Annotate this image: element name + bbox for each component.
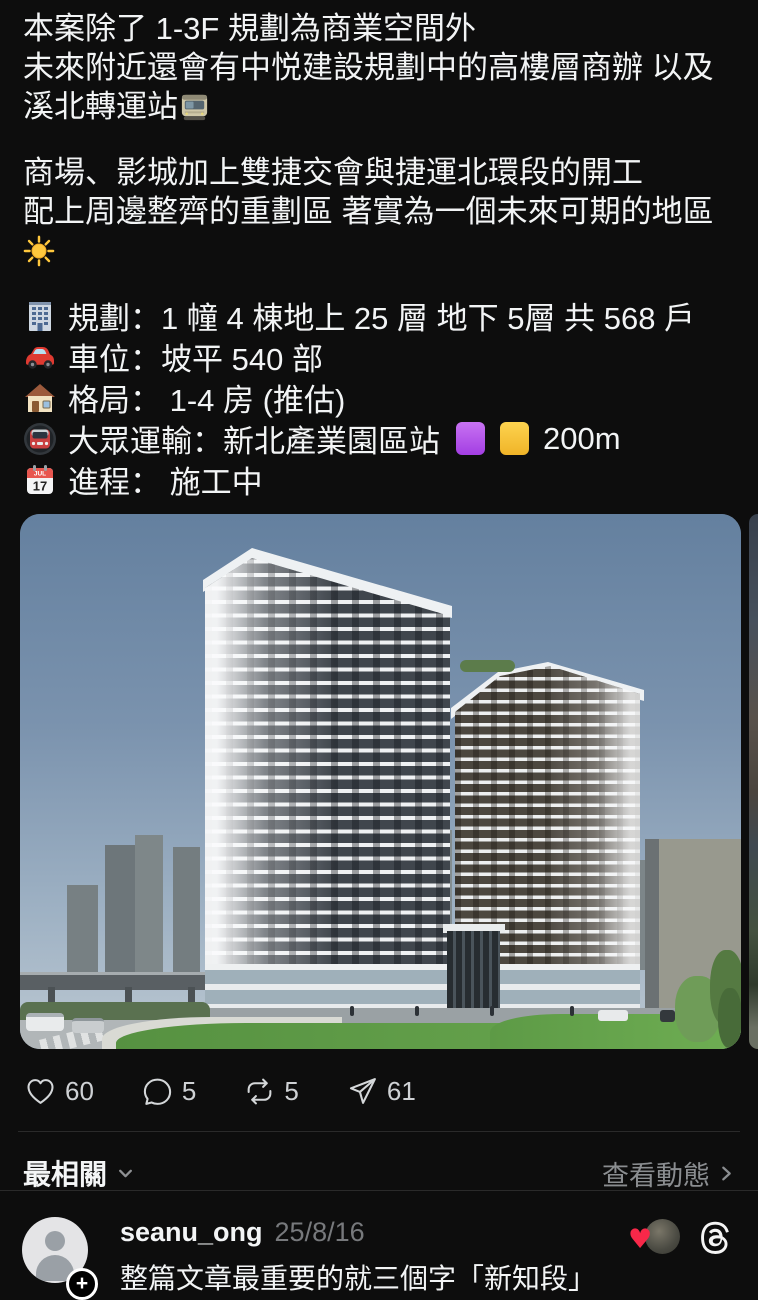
repost-count: 5 [284,1076,298,1107]
spec-list: 規劃：1 幢 4 棟地上 25 層 地下 5層 共 568 戶 車位：坡平 54… [0,276,758,500]
avatar-silhouette [45,1231,65,1251]
car [598,1010,628,1021]
share-count: 61 [387,1076,416,1107]
car [26,1013,64,1031]
office-building-emoji [23,299,57,333]
sort-dropdown[interactable]: 最相關 [23,1153,135,1193]
red-car-emoji [23,340,57,374]
post-body: 本案除了 1-3F 規劃為商業空間外 未來附近還會有中悦建設規劃中的高樓層商辦 … [0,0,758,276]
spec-text: 進程： 施工中 [68,457,263,502]
divider [18,1131,740,1132]
share-button[interactable]: 61 [347,1076,416,1107]
follow-plus-badge[interactable]: + [66,1268,98,1300]
background-building [135,835,163,984]
spec-row-transit: 大眾運輸：新北產業園區站200m [23,418,748,459]
tram-emoji [178,90,211,132]
view-activity-link[interactable]: 查看動態 [602,1154,736,1193]
spec-text: 車位：坡平 540 部 [68,334,323,379]
spec-text: 規劃：1 幢 4 棟地上 25 層 地下 5層 共 568 戶 [68,293,695,338]
repost-icon [244,1076,275,1107]
comment-text: 整篇文章最重要的就三個字「新知段」 [120,1261,633,1297]
comment-icon [142,1076,173,1107]
spec-row-progress: JUL17 進程： 施工中 [23,459,748,500]
comment-header: seanu_ong 25/8/16 [120,1217,633,1248]
pedestrian [490,1006,494,1016]
next-image-preview[interactable] [749,514,758,1049]
purple-square-emoji [456,422,485,455]
heart-icon [25,1076,56,1107]
post-line: 商場、影城加上雙捷交會與捷運北環段的開工 [23,153,743,192]
house-emoji [23,381,57,415]
post-media-carousel [0,514,758,1049]
roof-garden [460,660,515,672]
spec-text: 格局： 1-4 房 (推估) [68,375,345,420]
spec-distance: 200m [543,421,621,457]
tree [718,988,741,1048]
sort-label: 最相關 [23,1153,107,1193]
pedestrian [570,1006,574,1016]
car [72,1018,104,1033]
background-building [173,847,200,984]
post-image[interactable] [20,514,741,1049]
replies-controls: 最相關 查看動態 [0,1156,758,1190]
commenter-username[interactable]: seanu_ong [120,1217,263,1248]
calendar-emoji: JUL17 [23,463,57,497]
chevron-right-icon [717,1164,736,1183]
chevron-down-icon [116,1164,135,1183]
metro-emoji [23,422,57,456]
comment-item: + seanu_ong 25/8/16 整篇文章最重要的就三個字「新知段」 ♥ [0,1217,758,1297]
red-heart-icon: ♥ [628,1224,652,1255]
pedestrian [350,1006,354,1016]
post-paragraph-2: 商場、影城加上雙捷交會與捷運北環段的開工 配上周邊整齊的重劃區 著實為一個未來可… [23,153,743,276]
spec-row-layout: 格局： 1-4 房 (推估) [23,377,748,418]
liked-by-author-indicator[interactable]: ♥ [645,1219,681,1255]
engagement-bar: 60 5 5 61 [0,1075,758,1107]
repost-button[interactable]: 5 [244,1076,298,1107]
post-paragraph-1: 本案除了 1-3F 規劃為商業空間外 未來附近還會有中悦建設規劃中的高樓層商辦 … [23,9,743,132]
commenter-avatar[interactable]: + [22,1217,88,1283]
post-line: 本案除了 1-3F 規劃為商業空間外 [23,9,743,48]
sun-emoji [23,235,55,276]
spec-row-plan: 規劃：1 幢 4 棟地上 25 層 地下 5層 共 568 戶 [23,295,748,336]
reply-button[interactable]: 5 [142,1076,196,1107]
comment-side-icons: ♥ [645,1217,732,1297]
comment-date: 25/8/16 [275,1217,365,1248]
spec-row-parking: 車位：坡平 540 部 [23,336,748,377]
share-icon [347,1076,378,1107]
reply-count: 5 [182,1076,196,1107]
svg-text:JUL: JUL [34,470,46,477]
activity-label: 查看動態 [602,1154,710,1193]
svg-text:17: 17 [33,478,47,493]
post-line: 未來附近還會有中悦建設規劃中的高樓層商辦 以及溪北轉運站 [23,48,743,132]
threads-logo-icon[interactable] [698,1219,732,1259]
background-building [67,885,98,984]
post-line: 配上周邊整齊的重劃區 著實為一個未來可期的地區 [23,192,743,276]
tower-left [205,546,450,972]
comment-body: seanu_ong 25/8/16 整篇文章最重要的就三個字「新知段」 [120,1217,633,1297]
like-count: 60 [65,1076,94,1107]
pedestrian [415,1006,419,1016]
scooter [660,1010,675,1022]
spec-text: 大眾運輸：新北產業園區站 [68,416,440,461]
like-button[interactable]: 60 [25,1076,94,1107]
yellow-square-emoji [500,422,529,455]
threads-post-page: 本案除了 1-3F 規劃為商業空間外 未來附近還會有中悦建設規劃中的高樓層商辦 … [0,0,758,1280]
